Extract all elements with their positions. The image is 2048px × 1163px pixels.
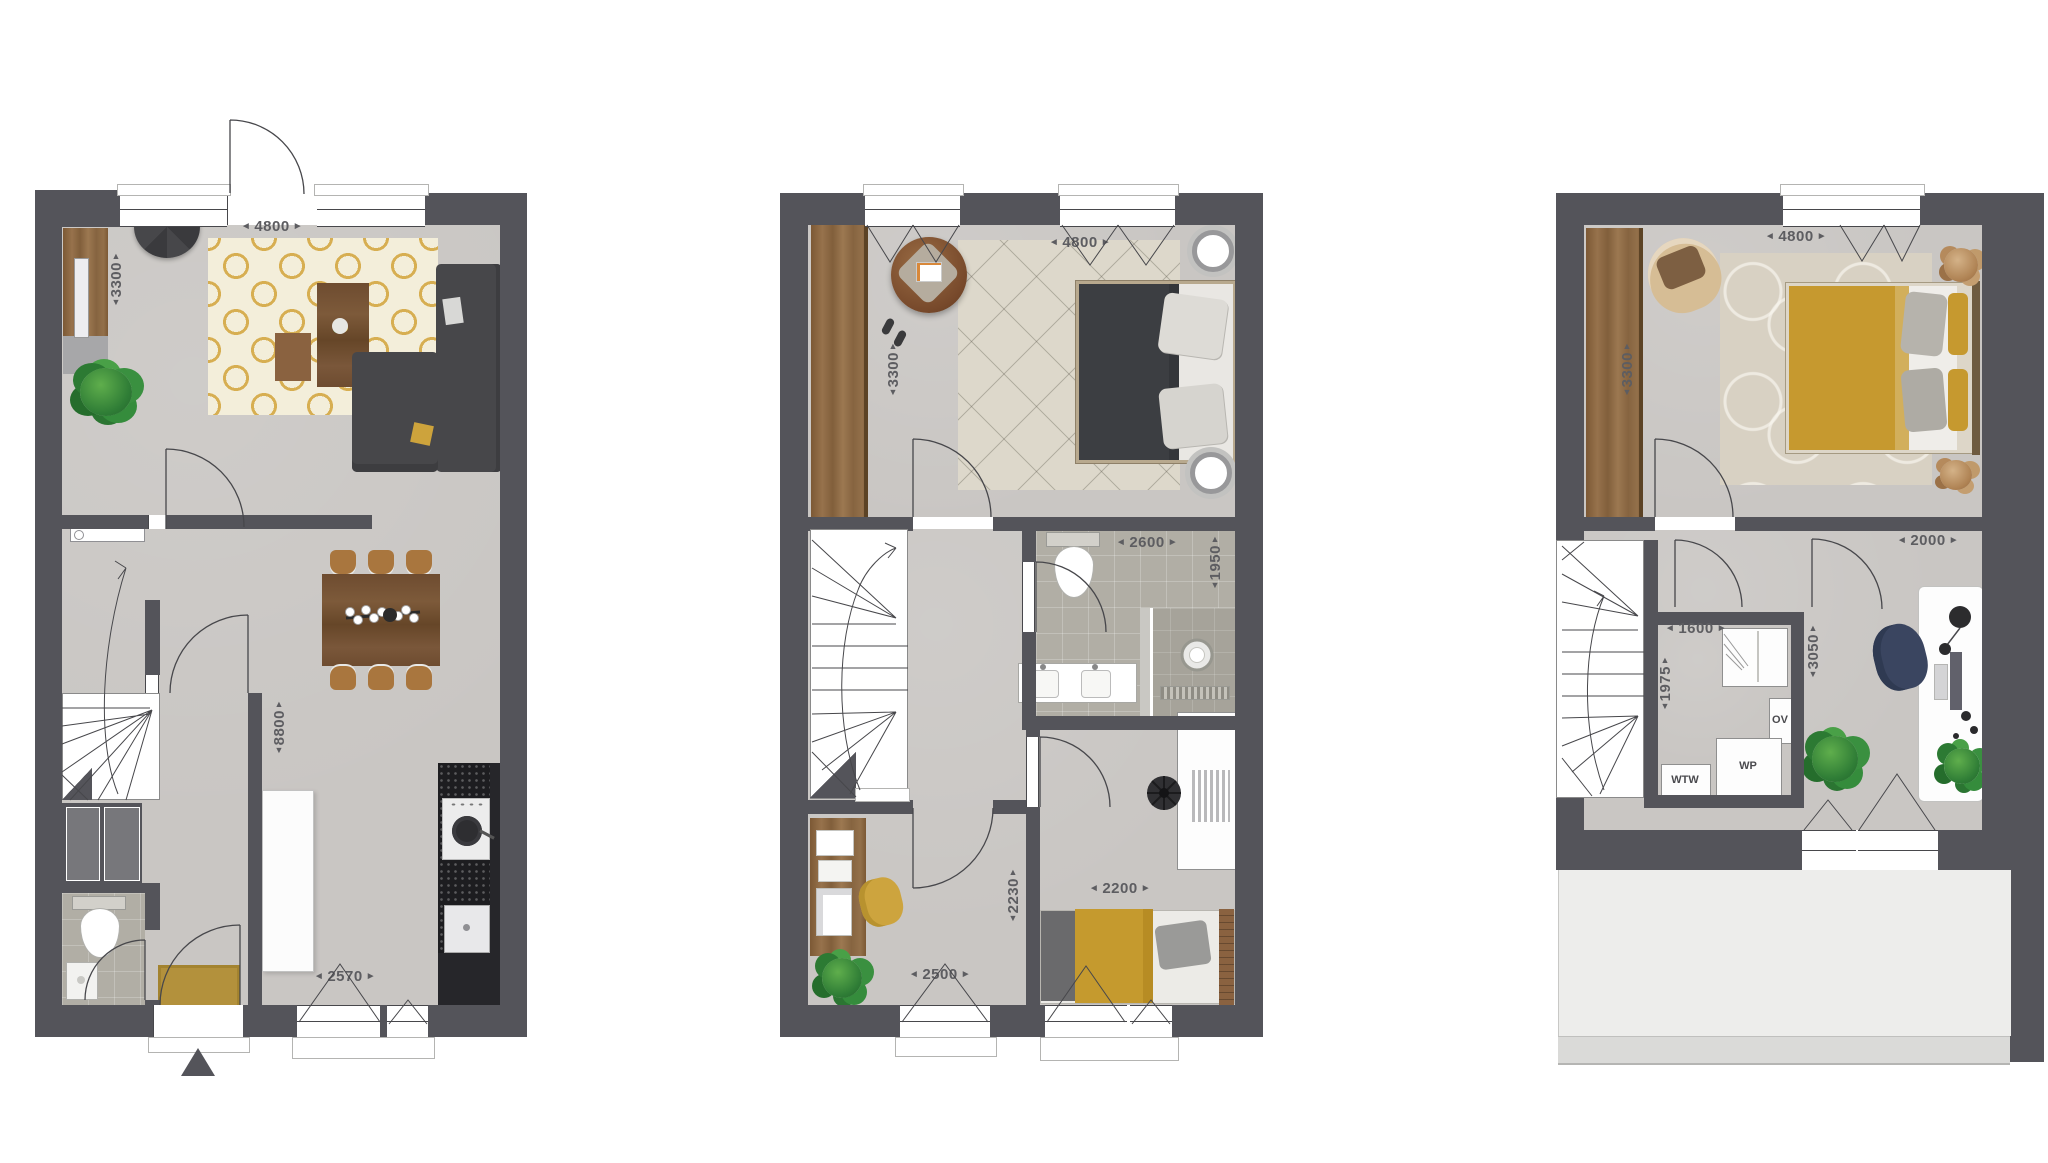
pillow: [1900, 367, 1947, 432]
dim-sf-width: ◄4800►: [1748, 228, 1844, 245]
dim-sf-tech-width: ◄1600►: [1656, 620, 1736, 637]
roof-terrace: [1558, 870, 2011, 1036]
terrace-edge: [1558, 1036, 2010, 1065]
dim-sf-tech-depth: ▲1975▼: [1652, 656, 1678, 711]
interior-wall: [1584, 517, 1655, 531]
monitor: [1950, 652, 1962, 710]
arrow-down-icon: ▼: [1809, 670, 1818, 679]
arrow-up-icon: ▲: [1809, 624, 1818, 633]
outer-wall: [1556, 193, 1584, 540]
floorplan-canvas: ◄4800► ▲3300▼ ▲8800▼ ◄2570►: [0, 0, 2048, 1163]
arrow-right-icon: ►: [1817, 231, 1827, 242]
pillow: [1900, 291, 1948, 357]
arrow-down-icon: ▼: [1661, 702, 1670, 711]
window: [1783, 193, 1920, 227]
pillow-mustard: [1948, 369, 1968, 431]
interior-wall: [1735, 517, 1982, 531]
bed-headboard: [1972, 281, 1980, 455]
dim-value: 2000: [1910, 532, 1945, 549]
dim-value: 3300: [1619, 352, 1636, 387]
window: [1802, 830, 1856, 872]
outer-wall: [1938, 830, 2010, 870]
outer-wall: [1982, 193, 2010, 870]
dim-sf-workspace-width: ◄2000►: [1886, 532, 1970, 549]
dried-leaf: [1940, 460, 1972, 490]
arrow-down-icon: ▼: [1623, 388, 1632, 397]
ov-text: OV: [1772, 714, 1788, 726]
arrow-left-icon: ◄: [1897, 535, 1907, 546]
floor-plant: [1812, 736, 1858, 782]
outer-wall: [1556, 193, 1783, 225]
plan-second-floor: OV WP WTW: [0, 0, 2048, 1163]
wp-label: WP: [1716, 756, 1780, 776]
interior-wall: [1644, 795, 1804, 808]
dim-sf-bedroom-depth: ▲3300▼: [1614, 342, 1640, 397]
duvet-mustard: [1789, 286, 1909, 450]
window: [1858, 830, 1938, 872]
wp-text: WP: [1739, 760, 1757, 772]
wtw-text: WTW: [1671, 774, 1698, 786]
party-wall: [2010, 193, 2044, 1062]
pillow-mustard: [1948, 293, 1968, 355]
keyboard: [1934, 664, 1948, 700]
arrow-right-icon: ►: [1717, 623, 1727, 634]
dim-sf-workspace-depth: ▲3050▼: [1800, 624, 1826, 679]
dim-value: 4800: [1778, 228, 1813, 245]
arrow-left-icon: ◄: [1665, 623, 1675, 634]
desk-plant: [1944, 748, 1980, 784]
arrow-up-icon: ▲: [1623, 342, 1632, 351]
ov-label: OV: [1769, 710, 1791, 730]
dried-plant: [1944, 248, 1978, 282]
dim-value: 1600: [1678, 620, 1713, 637]
arrow-right-icon: ►: [1949, 535, 1959, 546]
arrow-left-icon: ◄: [1765, 231, 1775, 242]
arrow-up-icon: ▲: [1661, 656, 1670, 665]
dim-value: 3050: [1805, 634, 1822, 669]
double-bed: [1785, 282, 1980, 454]
wtw-label: WTW: [1661, 770, 1709, 790]
dim-value: 1975: [1657, 666, 1674, 701]
armchair-cushion: [1654, 244, 1708, 292]
outer-wall: [1556, 830, 1802, 870]
staircase-second: [1556, 540, 1644, 798]
window-sill: [1780, 184, 1925, 196]
washer-door-line: [1757, 631, 1759, 682]
